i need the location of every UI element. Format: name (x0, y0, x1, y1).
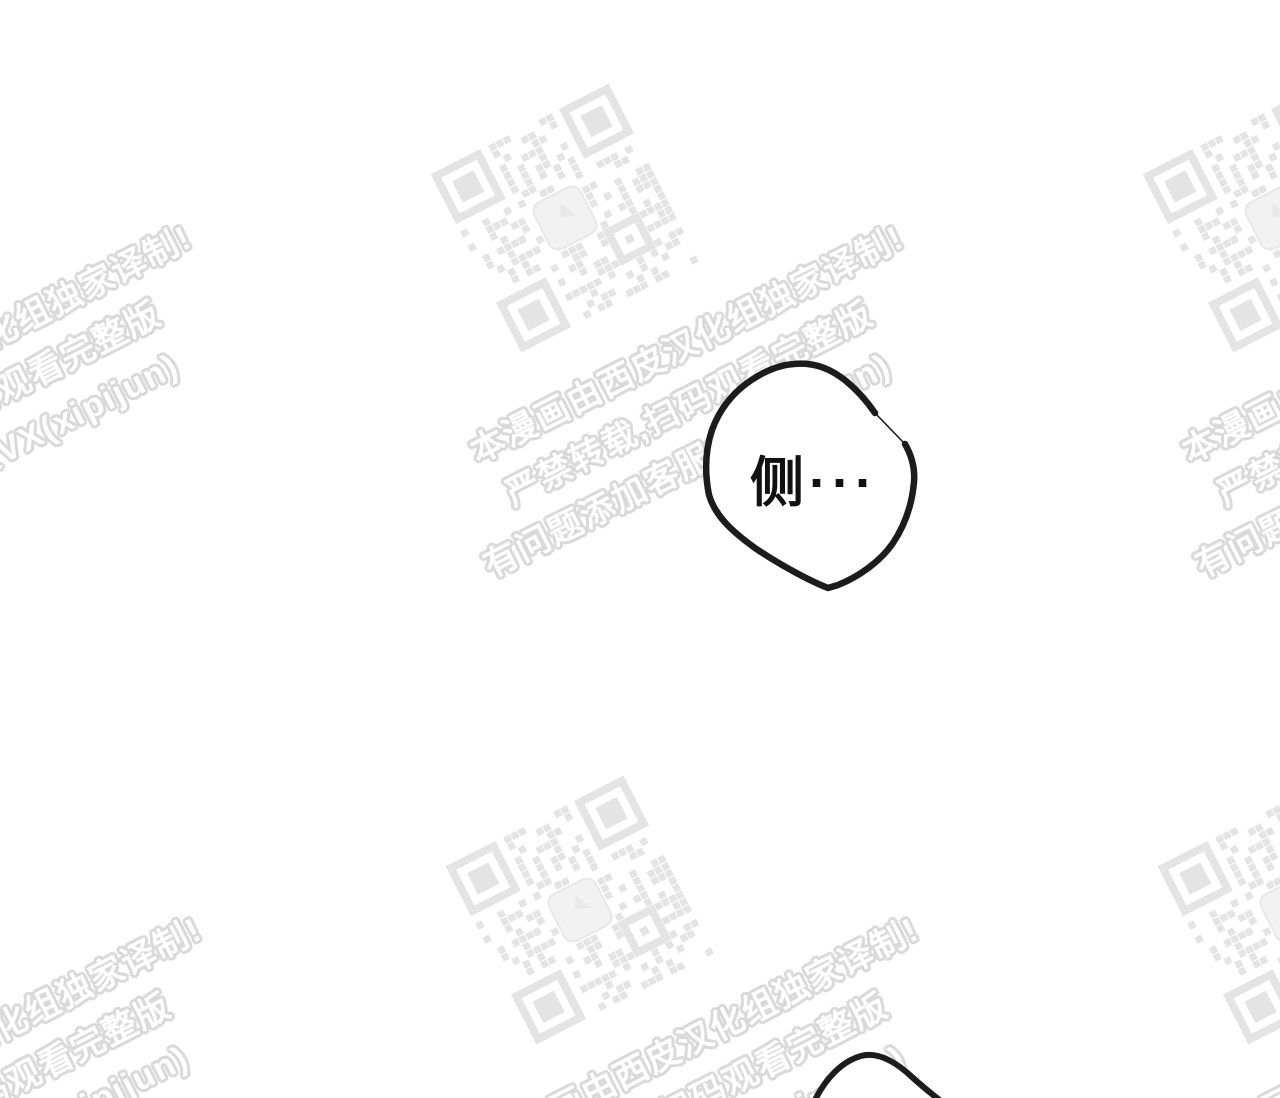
comic-page: 本漫画由西皮汉化组独家译制! 严禁转载,扫码观看完整版 有问题添加客服VX(xi… (0, 0, 1280, 1098)
speech-bubble-layer (0, 0, 1280, 1098)
speech-bubble-text: 侧··· (750, 438, 878, 517)
